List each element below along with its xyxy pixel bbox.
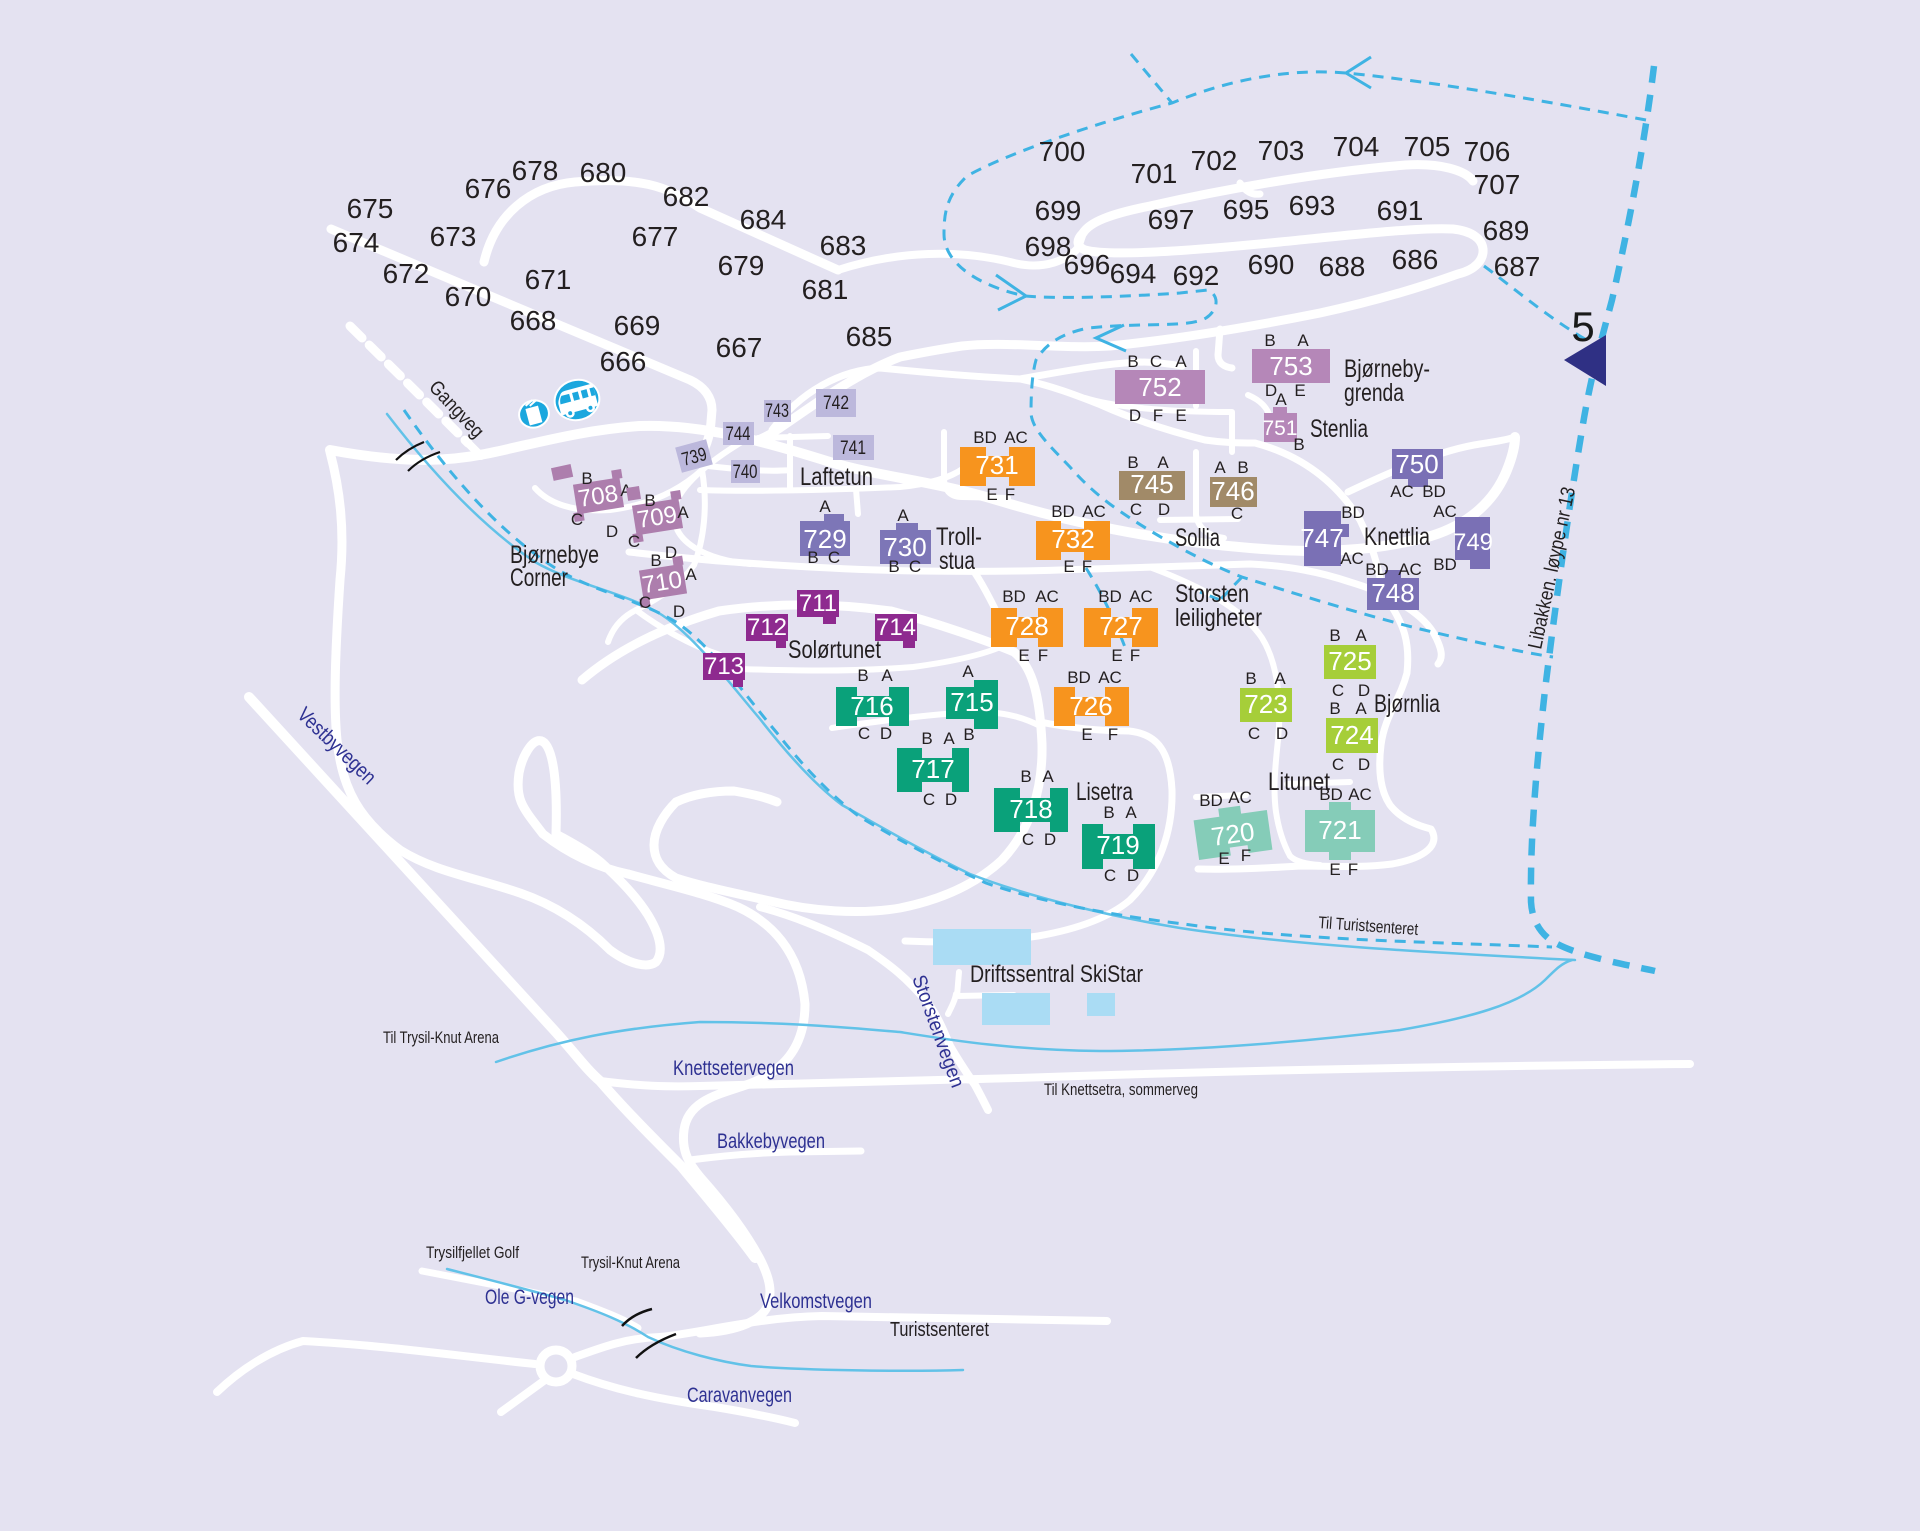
svg-text:672: 672 bbox=[383, 258, 430, 289]
svg-text:AC: AC bbox=[1340, 549, 1364, 568]
svg-text:Knettlia: Knettlia bbox=[1364, 523, 1430, 551]
svg-text:AC: AC bbox=[1129, 587, 1153, 606]
svg-text:678: 678 bbox=[512, 155, 559, 186]
svg-text:676: 676 bbox=[465, 173, 512, 204]
svg-text:Bakkebyvegen: Bakkebyvegen bbox=[717, 1130, 825, 1153]
svg-text:F: F bbox=[1005, 485, 1015, 504]
svg-text:B: B bbox=[1264, 331, 1275, 350]
svg-text:A: A bbox=[943, 729, 955, 748]
svg-text:742: 742 bbox=[823, 393, 849, 414]
svg-text:C: C bbox=[828, 548, 840, 567]
svg-text:C: C bbox=[1150, 352, 1162, 371]
svg-text:BD: BD bbox=[1199, 791, 1223, 810]
svg-text:C: C bbox=[1104, 866, 1116, 885]
svg-text:A: A bbox=[1214, 458, 1226, 477]
svg-text:A: A bbox=[819, 497, 831, 516]
svg-text:748: 748 bbox=[1371, 578, 1414, 608]
svg-text:A: A bbox=[1042, 767, 1054, 786]
svg-text:717: 717 bbox=[911, 754, 954, 784]
svg-text:E: E bbox=[1018, 646, 1029, 665]
svg-text:725: 725 bbox=[1328, 646, 1371, 676]
svg-text:E: E bbox=[1218, 849, 1229, 868]
svg-text:D: D bbox=[1158, 500, 1170, 519]
svg-text:AC: AC bbox=[1004, 428, 1028, 447]
svg-text:BD: BD bbox=[1098, 587, 1122, 606]
svg-text:AC: AC bbox=[1398, 560, 1422, 579]
svg-text:686: 686 bbox=[1392, 244, 1439, 275]
svg-text:C: C bbox=[639, 593, 651, 612]
svg-text:694: 694 bbox=[1110, 258, 1157, 289]
svg-text:A: A bbox=[962, 662, 974, 681]
svg-text:670: 670 bbox=[445, 281, 492, 312]
svg-text:703: 703 bbox=[1258, 135, 1305, 166]
svg-text:Stenlia: Stenlia bbox=[1310, 415, 1368, 443]
svg-text:Trysilfjellet Golf: Trysilfjellet Golf bbox=[426, 1243, 519, 1262]
svg-text:A: A bbox=[677, 503, 689, 522]
svg-text:B: B bbox=[1329, 626, 1340, 645]
svg-text:Solørtunet: Solørtunet bbox=[788, 636, 881, 664]
svg-text:668: 668 bbox=[510, 305, 557, 336]
svg-text:AC: AC bbox=[1082, 502, 1106, 521]
svg-text:683: 683 bbox=[820, 230, 867, 261]
svg-text:C: C bbox=[1248, 724, 1260, 743]
svg-text:718: 718 bbox=[1009, 794, 1052, 824]
svg-text:B: B bbox=[1245, 669, 1256, 688]
svg-text:689: 689 bbox=[1483, 215, 1530, 246]
svg-text:681: 681 bbox=[802, 274, 849, 305]
svg-text:721: 721 bbox=[1318, 815, 1361, 845]
svg-text:D: D bbox=[673, 602, 685, 621]
svg-text:716: 716 bbox=[850, 691, 893, 721]
svg-text:751: 751 bbox=[1262, 417, 1297, 440]
svg-text:B: B bbox=[1237, 458, 1248, 477]
svg-text:707: 707 bbox=[1474, 169, 1521, 200]
svg-text:Caravanvegen: Caravanvegen bbox=[687, 1384, 792, 1407]
svg-text:C: C bbox=[1332, 755, 1344, 774]
svg-text:B: B bbox=[1127, 352, 1138, 371]
svg-text:Sollia: Sollia bbox=[1175, 524, 1220, 552]
svg-text:706: 706 bbox=[1464, 136, 1511, 167]
svg-text:A: A bbox=[1175, 352, 1187, 371]
svg-text:B: B bbox=[857, 666, 868, 685]
svg-text:715: 715 bbox=[950, 687, 993, 717]
svg-text:C: C bbox=[1022, 830, 1034, 849]
svg-text:696: 696 bbox=[1064, 249, 1111, 280]
svg-text:719: 719 bbox=[1096, 830, 1139, 860]
svg-text:Til Trysil-Knut Arena: Til Trysil-Knut Arena bbox=[383, 1028, 499, 1047]
svg-text:D: D bbox=[1276, 724, 1288, 743]
svg-text:723: 723 bbox=[1244, 689, 1287, 719]
svg-text:700: 700 bbox=[1039, 136, 1086, 167]
svg-text:745: 745 bbox=[1130, 469, 1173, 499]
svg-text:728: 728 bbox=[1005, 611, 1048, 641]
svg-text:702: 702 bbox=[1191, 145, 1238, 176]
svg-text:731: 731 bbox=[975, 450, 1018, 480]
svg-text:669: 669 bbox=[614, 310, 661, 341]
svg-text:Corner: Corner bbox=[510, 564, 568, 592]
svg-text:674: 674 bbox=[333, 227, 380, 258]
svg-text:Til Knettsetra, sommerveg: Til Knettsetra, sommerveg bbox=[1044, 1080, 1198, 1099]
svg-text:753: 753 bbox=[1269, 351, 1312, 381]
svg-text:Driftssentral SkiStar: Driftssentral SkiStar bbox=[970, 961, 1143, 988]
svg-text:701: 701 bbox=[1131, 158, 1178, 189]
svg-text:F: F bbox=[1130, 646, 1140, 665]
svg-text:C: C bbox=[1231, 504, 1243, 523]
svg-text:747: 747 bbox=[1300, 523, 1343, 553]
svg-text:667: 667 bbox=[716, 332, 763, 363]
svg-text:Velkomstvegen: Velkomstvegen bbox=[760, 1290, 872, 1313]
svg-text:AC: AC bbox=[1390, 482, 1414, 501]
svg-text:Bjørnlia: Bjørnlia bbox=[1374, 690, 1440, 718]
svg-text:B: B bbox=[581, 469, 592, 488]
svg-text:704: 704 bbox=[1333, 131, 1380, 162]
svg-text:BD: BD bbox=[1067, 668, 1091, 687]
svg-text:726: 726 bbox=[1069, 691, 1112, 721]
svg-text:E: E bbox=[1081, 725, 1092, 744]
svg-text:743: 743 bbox=[765, 401, 789, 422]
svg-text:C: C bbox=[923, 790, 935, 809]
svg-text:697: 697 bbox=[1148, 204, 1195, 235]
svg-text:BD: BD bbox=[1433, 555, 1457, 574]
svg-text:711: 711 bbox=[799, 590, 837, 617]
svg-text:E: E bbox=[1063, 557, 1074, 576]
svg-text:BD: BD bbox=[1341, 503, 1365, 522]
svg-text:BD: BD bbox=[1365, 560, 1389, 579]
svg-text:673: 673 bbox=[430, 221, 477, 252]
svg-text:BD: BD bbox=[1051, 502, 1075, 521]
svg-text:679: 679 bbox=[718, 250, 765, 281]
svg-text:732: 732 bbox=[1051, 524, 1094, 554]
svg-text:E: E bbox=[1329, 860, 1340, 879]
svg-text:A: A bbox=[685, 565, 697, 584]
svg-text:690: 690 bbox=[1248, 249, 1295, 280]
svg-text:752: 752 bbox=[1138, 372, 1181, 402]
svg-text:666: 666 bbox=[600, 346, 647, 377]
svg-text:5: 5 bbox=[1571, 303, 1594, 350]
svg-text:714: 714 bbox=[876, 614, 916, 641]
svg-text:C: C bbox=[628, 532, 640, 551]
svg-text:741: 741 bbox=[840, 438, 866, 459]
svg-text:Trysil-Knut Arena: Trysil-Knut Arena bbox=[581, 1253, 680, 1272]
svg-text:740: 740 bbox=[733, 462, 758, 483]
svg-text:691: 691 bbox=[1377, 195, 1424, 226]
svg-text:F: F bbox=[1241, 846, 1251, 865]
svg-text:B: B bbox=[963, 725, 974, 744]
svg-text:BD: BD bbox=[973, 428, 997, 447]
svg-text:C: C bbox=[571, 510, 583, 529]
svg-text:713: 713 bbox=[704, 653, 744, 680]
svg-text:B: B bbox=[1293, 435, 1304, 454]
svg-text:B: B bbox=[888, 557, 899, 576]
svg-text:688: 688 bbox=[1319, 251, 1366, 282]
svg-text:746: 746 bbox=[1211, 476, 1254, 506]
svg-text:705: 705 bbox=[1404, 131, 1451, 162]
svg-text:D: D bbox=[1127, 866, 1139, 885]
svg-text:A: A bbox=[1297, 331, 1309, 350]
svg-text:stua: stua bbox=[939, 547, 975, 575]
svg-text:B: B bbox=[1020, 767, 1031, 786]
svg-text:C: C bbox=[858, 724, 870, 743]
svg-text:677: 677 bbox=[632, 221, 679, 252]
svg-text:B: B bbox=[650, 551, 661, 570]
svg-text:D: D bbox=[1358, 755, 1370, 774]
svg-text:680: 680 bbox=[580, 157, 627, 188]
svg-text:F: F bbox=[1348, 860, 1358, 879]
svg-text:AC: AC bbox=[1228, 788, 1252, 807]
svg-text:E: E bbox=[1111, 646, 1122, 665]
svg-text:BD: BD bbox=[1002, 587, 1026, 606]
svg-text:AC: AC bbox=[1035, 587, 1059, 606]
svg-text:Laftetun: Laftetun bbox=[800, 463, 873, 491]
svg-text:695: 695 bbox=[1223, 194, 1270, 225]
svg-text:A: A bbox=[881, 666, 893, 685]
svg-text:749: 749 bbox=[1453, 529, 1493, 556]
svg-text:AC: AC bbox=[1348, 785, 1372, 804]
svg-text:F: F bbox=[1038, 646, 1048, 665]
svg-text:A: A bbox=[1275, 390, 1287, 409]
svg-text:A: A bbox=[1355, 699, 1367, 718]
svg-text:B: B bbox=[807, 548, 818, 567]
svg-text:B: B bbox=[921, 729, 932, 748]
svg-text:693: 693 bbox=[1289, 190, 1336, 221]
svg-text:E: E bbox=[986, 485, 997, 504]
svg-text:leiligheter: leiligheter bbox=[1175, 604, 1262, 632]
svg-text:C: C bbox=[909, 557, 921, 576]
svg-text:Lisetra: Lisetra bbox=[1076, 778, 1133, 806]
svg-text:A: A bbox=[897, 506, 909, 525]
svg-text:712: 712 bbox=[747, 614, 787, 641]
svg-text:D: D bbox=[880, 724, 892, 743]
svg-text:Turistsenteret: Turistsenteret bbox=[890, 1319, 989, 1341]
svg-text:grenda: grenda bbox=[1344, 379, 1404, 407]
svg-text:671: 671 bbox=[525, 264, 572, 295]
svg-text:684: 684 bbox=[740, 204, 787, 235]
svg-text:F: F bbox=[1108, 725, 1118, 744]
svg-text:C: C bbox=[1130, 500, 1142, 519]
svg-text:Litunet: Litunet bbox=[1268, 768, 1330, 796]
svg-text:B: B bbox=[644, 491, 655, 510]
svg-text:692: 692 bbox=[1173, 260, 1220, 291]
svg-text:687: 687 bbox=[1494, 251, 1541, 282]
svg-text:C: C bbox=[1332, 681, 1344, 700]
svg-text:682: 682 bbox=[663, 181, 710, 212]
svg-text:D: D bbox=[1044, 830, 1056, 849]
svg-text:BD: BD bbox=[1422, 482, 1446, 501]
svg-text:E: E bbox=[1175, 406, 1186, 425]
svg-text:E: E bbox=[1294, 381, 1305, 400]
svg-text:B: B bbox=[1329, 699, 1340, 718]
svg-text:F: F bbox=[1082, 557, 1092, 576]
svg-text:F: F bbox=[1153, 406, 1163, 425]
svg-text:Knettsetervegen: Knettsetervegen bbox=[673, 1057, 794, 1080]
svg-text:AC: AC bbox=[1433, 502, 1457, 521]
svg-text:727: 727 bbox=[1099, 611, 1142, 641]
svg-text:A: A bbox=[1274, 669, 1286, 688]
svg-text:685: 685 bbox=[846, 321, 893, 352]
svg-text:699: 699 bbox=[1035, 195, 1082, 226]
svg-text:AC: AC bbox=[1098, 668, 1122, 687]
svg-text:D: D bbox=[1358, 681, 1370, 700]
svg-text:Ole G-vegen: Ole G-vegen bbox=[485, 1286, 574, 1309]
svg-text:724: 724 bbox=[1330, 720, 1373, 750]
svg-text:A: A bbox=[1355, 626, 1367, 645]
svg-text:750: 750 bbox=[1395, 449, 1438, 479]
svg-text:A: A bbox=[1157, 453, 1169, 472]
svg-text:D: D bbox=[1129, 406, 1141, 425]
svg-text:675: 675 bbox=[347, 193, 394, 224]
svg-text:D: D bbox=[606, 522, 618, 541]
svg-text:744: 744 bbox=[726, 424, 751, 445]
svg-text:B: B bbox=[1127, 453, 1138, 472]
svg-text:D: D bbox=[945, 790, 957, 809]
